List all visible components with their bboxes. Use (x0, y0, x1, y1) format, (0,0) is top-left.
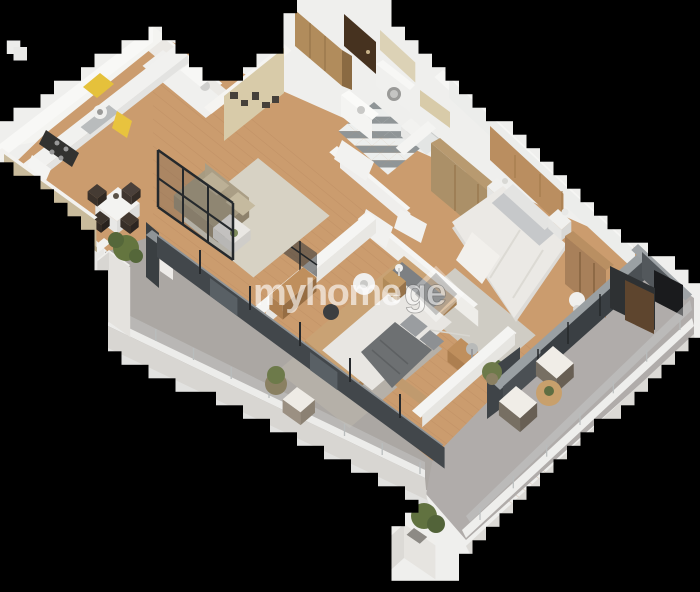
svg-text:myhome: myhome (253, 272, 401, 314)
svg-text:ge: ge (404, 272, 446, 314)
